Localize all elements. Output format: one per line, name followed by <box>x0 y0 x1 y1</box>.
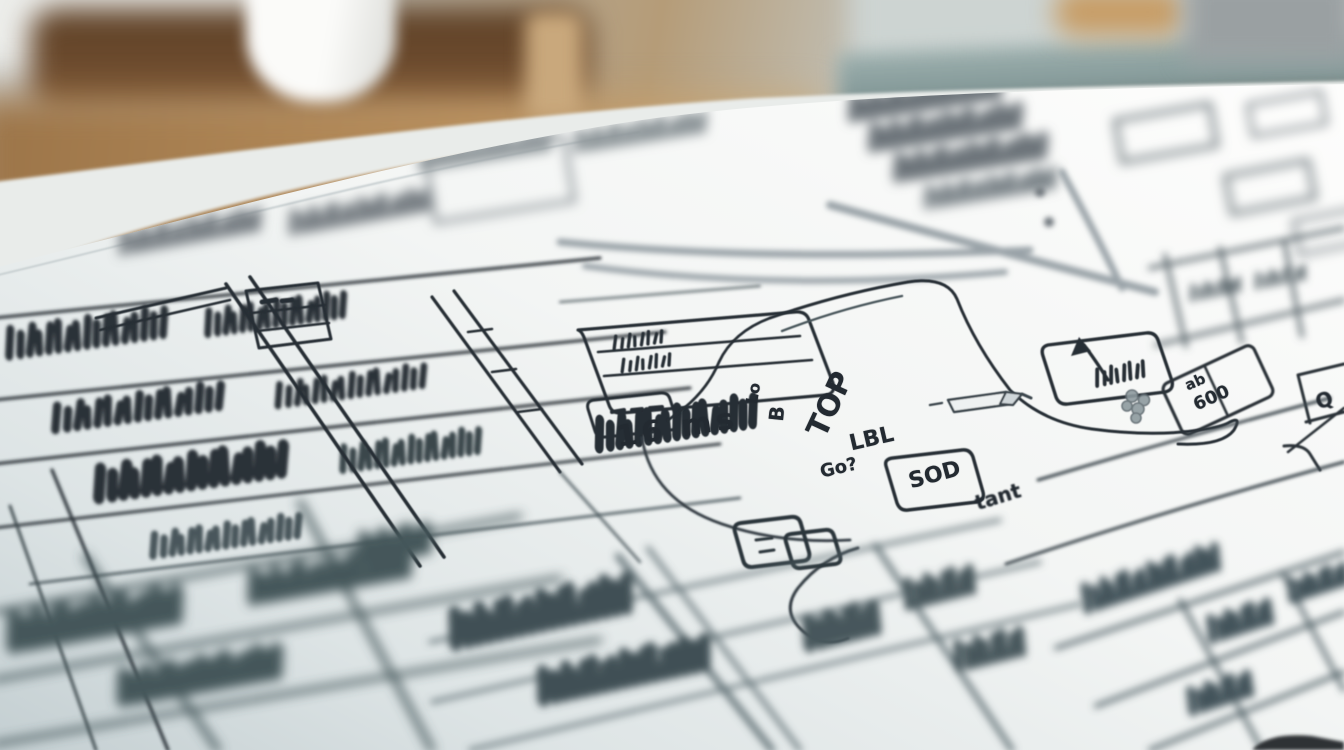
wireframe-sketch-svg <box>0 0 1344 750</box>
annotation-lo: Lo <box>742 381 764 405</box>
photo-scene: TOP Lo B 16 ms LBL Go? SOD tant ab 600 Q <box>0 0 1344 750</box>
annotation-b: B <box>764 405 789 423</box>
